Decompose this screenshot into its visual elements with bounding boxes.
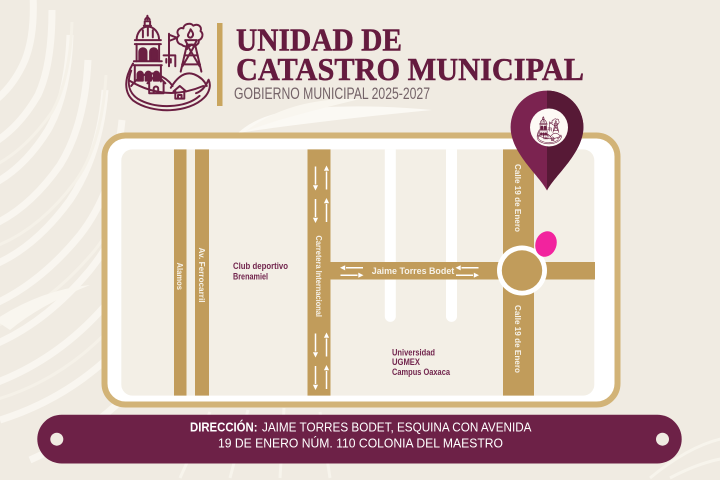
svg-text:Av. Ferrocarril: Av. Ferrocarril [197, 248, 206, 303]
svg-text:CATASTRO MUNICIPAL: CATASTRO MUNICIPAL [236, 52, 584, 87]
svg-text:Alamos: Alamos [175, 263, 184, 291]
svg-text:Club deportivo: Club deportivo [233, 261, 288, 271]
svg-text:Jaime Torres Bodet: Jaime Torres Bodet [372, 266, 455, 276]
svg-text:Calle 19 de Enero: Calle 19 de Enero [513, 305, 522, 373]
svg-text:GOBIERNO MUNICIPAL 2025-2027: GOBIERNO MUNICIPAL 2025-2027 [234, 84, 430, 103]
svg-text:Carretera Internacional: Carretera Internacional [314, 236, 323, 318]
svg-text:DIRECCIÓN:: DIRECCIÓN: [190, 420, 258, 435]
svg-text:JAIME TORRES BODET, ESQUINA CO: JAIME TORRES BODET, ESQUINA CON AVENIDA [262, 421, 532, 435]
svg-text:Campus Oaxaca: Campus Oaxaca [392, 367, 451, 377]
svg-text:19 DE ENERO NÚM. 110 COLONIA D: 19 DE ENERO NÚM. 110 COLONIA DEL MAESTRO [218, 436, 503, 451]
svg-text:Universidad: Universidad [392, 348, 435, 358]
svg-text:UGMEX: UGMEX [392, 357, 420, 367]
svg-text:Calle 19 de Enero: Calle 19 de Enero [513, 164, 522, 232]
svg-text:Brenamiel: Brenamiel [233, 272, 268, 282]
